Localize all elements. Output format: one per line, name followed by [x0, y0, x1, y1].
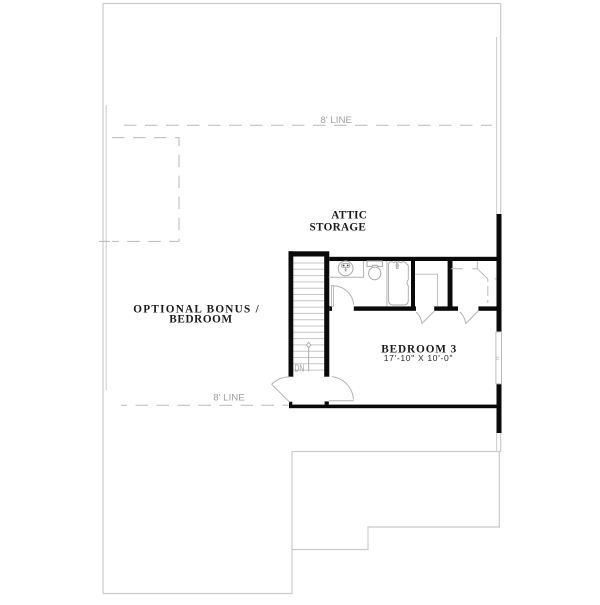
svg-text:17'-10" X 10'-0": 17'-10" X 10'-0" [384, 353, 453, 363]
svg-text:8' LINE: 8' LINE [320, 115, 352, 126]
svg-text:STORAGE: STORAGE [310, 221, 366, 233]
svg-text:DN: DN [295, 363, 305, 374]
svg-text:BEDROOM: BEDROOM [169, 314, 232, 326]
svg-text:ATTIC: ATTIC [331, 209, 367, 221]
svg-text:8' LINE: 8' LINE [213, 392, 245, 403]
